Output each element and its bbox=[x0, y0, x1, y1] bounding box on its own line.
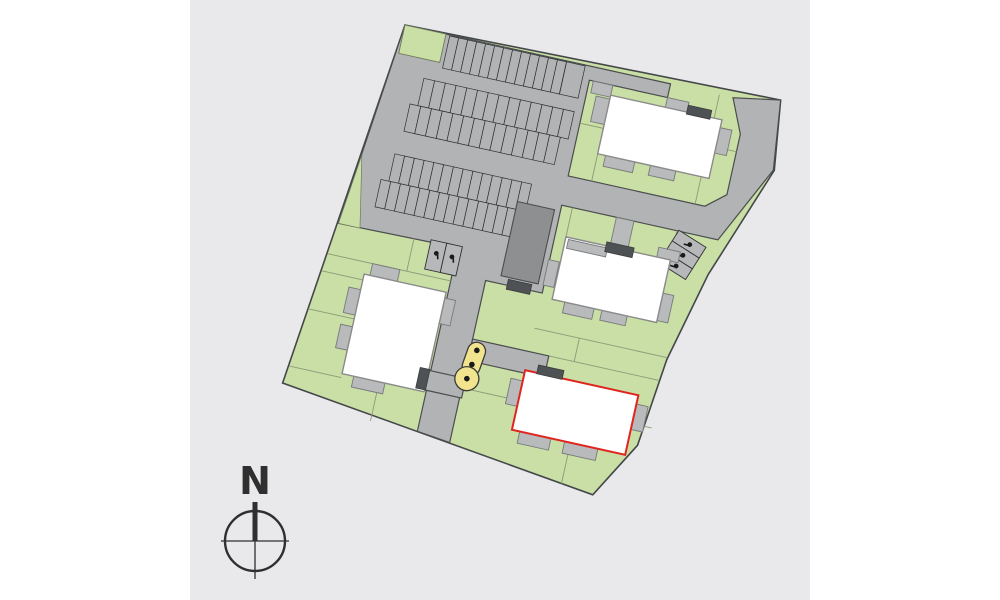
north-label: N bbox=[239, 459, 271, 503]
stall-person-icon-stem bbox=[437, 255, 439, 259]
site-plan-canvas: N bbox=[0, 0, 1000, 600]
stall-person-icon-stem bbox=[452, 258, 454, 262]
south-pair bbox=[425, 240, 463, 276]
compass-north-needle bbox=[253, 502, 258, 541]
site-plan-svg: N bbox=[0, 0, 1000, 600]
